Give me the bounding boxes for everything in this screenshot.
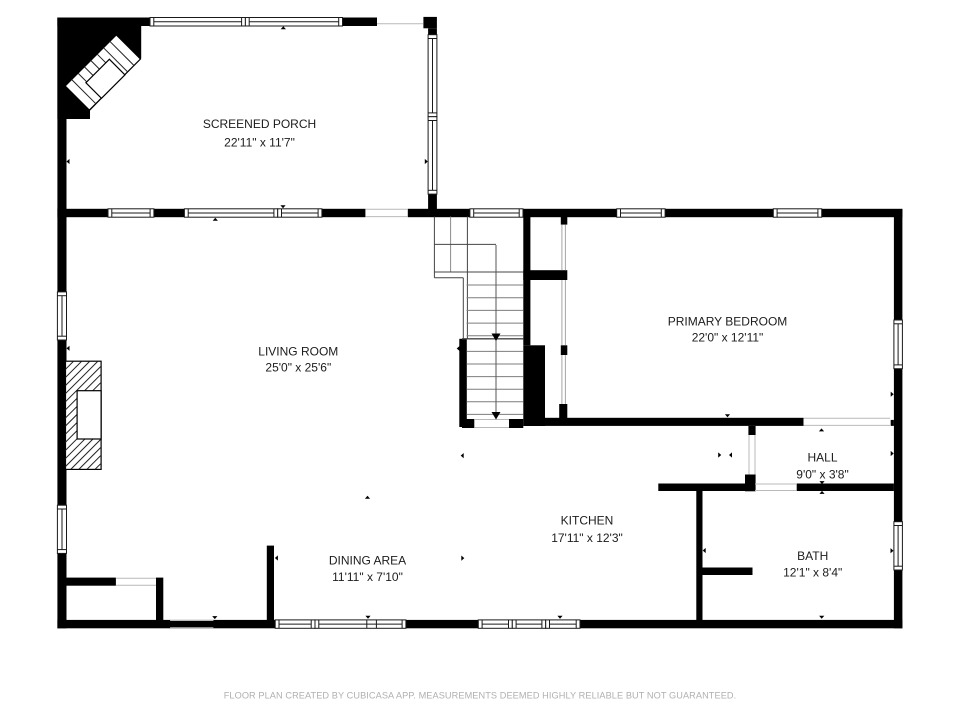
svg-text:LIVING ROOM: LIVING ROOM	[258, 345, 338, 359]
svg-text:BATH: BATH	[797, 549, 828, 563]
svg-text:11'11" x 7'10": 11'11" x 7'10"	[332, 570, 403, 584]
svg-text:SCREENED PORCH: SCREENED PORCH	[203, 117, 316, 131]
svg-text:PRIMARY BEDROOM: PRIMARY BEDROOM	[668, 315, 788, 329]
svg-text:12'1" x 8'4": 12'1" x 8'4"	[783, 566, 842, 580]
svg-text:KITCHEN: KITCHEN	[561, 514, 614, 528]
svg-text:FLOOR PLAN CREATED BY CUBICASA: FLOOR PLAN CREATED BY CUBICASA APP. MEAS…	[224, 691, 737, 701]
svg-text:9'0" x 3'8": 9'0" x 3'8"	[796, 468, 848, 482]
svg-text:22'0" x 12'11": 22'0" x 12'11"	[692, 330, 764, 344]
svg-text:HALL: HALL	[807, 451, 837, 465]
svg-text:22'11" x 11'7": 22'11" x 11'7"	[224, 136, 295, 150]
svg-text:DINING AREA: DINING AREA	[329, 554, 406, 568]
svg-text:25'0" x 25'6": 25'0" x 25'6"	[265, 361, 331, 375]
svg-text:17'11" x 12'3": 17'11" x 12'3"	[551, 531, 623, 545]
